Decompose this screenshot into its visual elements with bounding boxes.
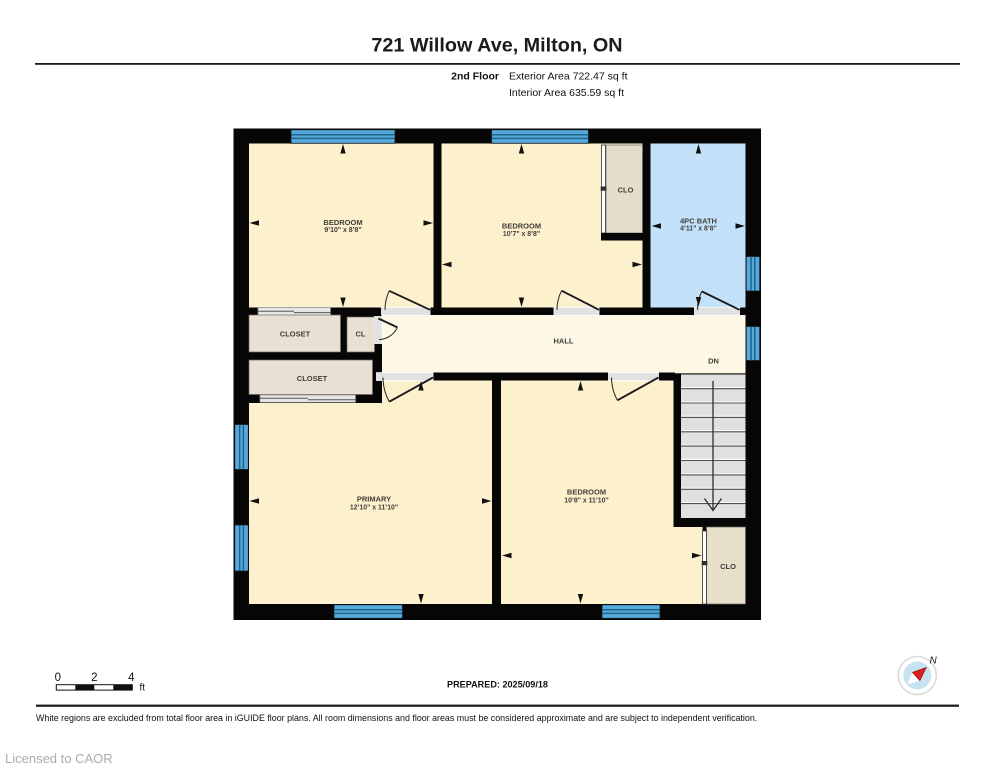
svg-text:Licensed to CAOR: Licensed to CAOR xyxy=(5,751,113,766)
svg-text:Exterior Area 722.47 sq ft: Exterior Area 722.47 sq ft xyxy=(509,71,628,83)
svg-text:BEDROOM: BEDROOM xyxy=(502,222,541,231)
svg-text:ft: ft xyxy=(140,683,146,694)
svg-text:9’10" x 8’8": 9’10" x 8’8" xyxy=(324,227,361,234)
svg-text:10’7" x 8’8": 10’7" x 8’8" xyxy=(503,231,540,238)
svg-text:PREPARED: 2025/09/18: PREPARED: 2025/09/18 xyxy=(447,680,548,690)
svg-text:4: 4 xyxy=(128,672,135,684)
svg-text:DN: DN xyxy=(708,356,719,365)
svg-text:HALL: HALL xyxy=(554,337,574,346)
svg-text:2nd Floor: 2nd Floor xyxy=(451,71,499,83)
svg-text:721 Willow Ave, Milton, ON: 721 Willow Ave, Milton, ON xyxy=(371,35,622,57)
svg-text:White regions are excluded fro: White regions are excluded from total fl… xyxy=(36,713,757,723)
svg-text:12’10" x 11’10": 12’10" x 11’10" xyxy=(350,504,398,511)
svg-text:10’8" x 11’10": 10’8" x 11’10" xyxy=(564,497,608,504)
svg-text:Interior Area 635.59 sq ft: Interior Area 635.59 sq ft xyxy=(509,87,624,99)
svg-text:N: N xyxy=(930,656,938,667)
svg-text:4PC BATH: 4PC BATH xyxy=(680,216,717,225)
svg-text:2: 2 xyxy=(91,672,97,684)
svg-text:CLOSET: CLOSET xyxy=(280,330,311,339)
svg-text:PRIMARY: PRIMARY xyxy=(357,494,391,503)
svg-text:CLO: CLO xyxy=(618,186,634,195)
svg-text:4’11" x 8’8": 4’11" x 8’8" xyxy=(680,226,717,233)
svg-text:0: 0 xyxy=(55,672,61,684)
svg-text:BEDROOM: BEDROOM xyxy=(567,488,606,497)
svg-text:CLOSET: CLOSET xyxy=(297,374,328,383)
svg-text:CL: CL xyxy=(356,330,366,339)
svg-text:CLO: CLO xyxy=(720,562,736,571)
svg-text:BEDROOM: BEDROOM xyxy=(323,218,362,227)
